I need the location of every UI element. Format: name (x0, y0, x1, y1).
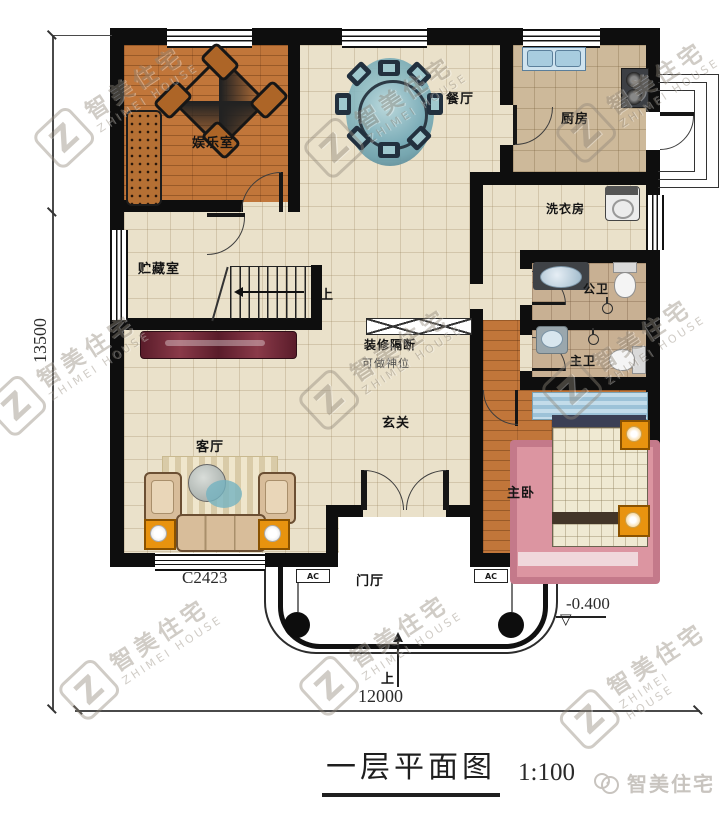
wall (110, 320, 124, 567)
stairs-direction-line (242, 291, 304, 293)
watermark-logo: Z (56, 656, 123, 723)
elevation-triangle: ▽ (560, 610, 572, 628)
wall-entry (338, 505, 363, 517)
page-title: 一层平面图 (322, 742, 500, 797)
lamp (264, 525, 281, 542)
room-label-porch: 门厅 (356, 570, 384, 589)
armchair-seat (151, 480, 174, 514)
window-storage (110, 230, 128, 320)
partition-note: 可做神位 (362, 355, 410, 371)
title-scale: 1:100 (518, 759, 575, 797)
wall-entertainment-dining (288, 45, 300, 212)
wall-bedroom-top (523, 377, 660, 390)
stairs-up-label: 上 (320, 284, 334, 303)
watermark-en: ZHIMEI HOUSE (121, 614, 226, 688)
window-entertainment (167, 29, 252, 48)
dim-total-width: 12000 (358, 686, 403, 707)
chair (378, 60, 400, 76)
wall-entry (446, 505, 483, 517)
porch-up-arrow-head (393, 632, 403, 642)
door-arc-kitchen (515, 107, 553, 145)
wall-porch-left (326, 505, 338, 567)
porch-column-right (498, 612, 524, 638)
window-code: C2423 (182, 568, 227, 588)
door-jamb (470, 280, 483, 284)
washer-panel (605, 186, 638, 195)
window-kitchen (523, 29, 600, 48)
door-arc-entry-left (364, 470, 404, 510)
dim-line-bottom (75, 710, 700, 712)
rug-decor (206, 480, 242, 508)
chair (335, 93, 351, 115)
room-label-bedroom: 主卧 (507, 482, 535, 501)
lamp (625, 512, 641, 528)
wall-bath-left (520, 263, 532, 269)
room-label-living: 客厅 (196, 436, 224, 455)
porch-up-line (397, 641, 399, 687)
room-label-entertainment: 娱乐室 (192, 132, 234, 151)
door-arc-storage (207, 217, 245, 255)
sink-basin (555, 50, 581, 67)
sofa (176, 514, 266, 552)
watermark-logo: Z (31, 104, 98, 171)
watermark: Z智美住宅ZHIMEI HOUSE (56, 588, 228, 722)
watermark-logo: Z (0, 372, 50, 439)
ac-unit-left: AC (296, 569, 330, 583)
room-label-dining: 餐厅 (446, 88, 474, 107)
door-arc-bedroom (483, 390, 518, 425)
wall (110, 553, 155, 567)
brand-icon (592, 771, 620, 795)
ac-label: AC (485, 572, 497, 581)
room-label-storage: 贮藏室 (138, 258, 180, 277)
partition-label: 装修隔断 (364, 336, 416, 353)
tv-screen (165, 340, 265, 346)
chair (427, 93, 443, 115)
toilet-bowl (609, 349, 635, 371)
partition-screen (366, 318, 472, 335)
watermark-cn: 智美住宅 (603, 618, 713, 702)
title-block: 一层平面图 1:100 (322, 742, 575, 797)
floor-corridor (483, 320, 520, 390)
stairs-arrow-head (234, 287, 243, 297)
toilet-bowl (614, 272, 636, 298)
door-arc-side-exit (660, 116, 694, 150)
ac-unit-right: AC (474, 569, 508, 583)
porch-column-left (284, 612, 310, 638)
elevation-value: -0.400 (566, 594, 610, 614)
wall-hall-right (470, 185, 483, 282)
door-arc-entry-right (406, 470, 446, 510)
bath-sink (540, 266, 582, 288)
wall-kitchen-left (500, 145, 513, 172)
lamp (626, 426, 642, 442)
room-label-master-bath: 主卫 (570, 352, 596, 369)
floor-plan-canvas: 上 装修隔断 可做神位 娱乐室 餐厅 厨房 洗衣房 公卫 主卫 (0, 0, 727, 814)
watermark-cn: 智美住宅 (106, 592, 219, 678)
burner (626, 89, 642, 105)
chair (378, 142, 400, 158)
floor-drain (602, 303, 613, 314)
entertainment-sofa (126, 110, 162, 206)
floor-drain-stem (592, 328, 594, 335)
floor-drain-stem (606, 297, 608, 304)
wall-kitchen-left (500, 45, 513, 105)
wall (288, 200, 300, 212)
wall (427, 28, 523, 45)
room-label-laundry: 洗衣房 (546, 200, 585, 217)
watermark: Z智美住宅ZHIMEI HOUSE (556, 618, 727, 755)
wall-storage-bottom (122, 318, 312, 330)
window-dining (342, 29, 427, 48)
room-label-public-bath: 公卫 (583, 280, 609, 297)
burner (626, 72, 642, 88)
dim-extension-top (52, 35, 112, 36)
room-label-foyer: 玄关 (382, 412, 410, 431)
floor-drain (588, 334, 599, 345)
sink-basin (527, 50, 553, 67)
window-laundry (646, 195, 664, 250)
brand-logo: 智美住宅 (592, 768, 715, 797)
wall-hall-bedroom (470, 313, 483, 567)
door-arc-entertainment (241, 172, 281, 212)
wall-bath-left (520, 305, 532, 335)
door-jamb (470, 309, 483, 313)
room-label-kitchen: 厨房 (561, 108, 589, 127)
column-centerline-right (511, 581, 513, 612)
armchair-seat (265, 480, 288, 514)
dim-line-left (52, 35, 54, 710)
column-centerline-left (297, 581, 299, 612)
dim-total-height: 13500 (30, 318, 51, 363)
lamp (150, 525, 167, 542)
rug-fringe (518, 552, 638, 566)
wall-kitchen-bottom (470, 172, 660, 185)
brand-name: 智美住宅 (627, 768, 715, 797)
porch-up-label: 上 (381, 668, 395, 687)
bath-sink (541, 330, 563, 348)
washer-door (612, 199, 634, 219)
wall (252, 28, 342, 45)
ac-label: AC (307, 572, 319, 581)
